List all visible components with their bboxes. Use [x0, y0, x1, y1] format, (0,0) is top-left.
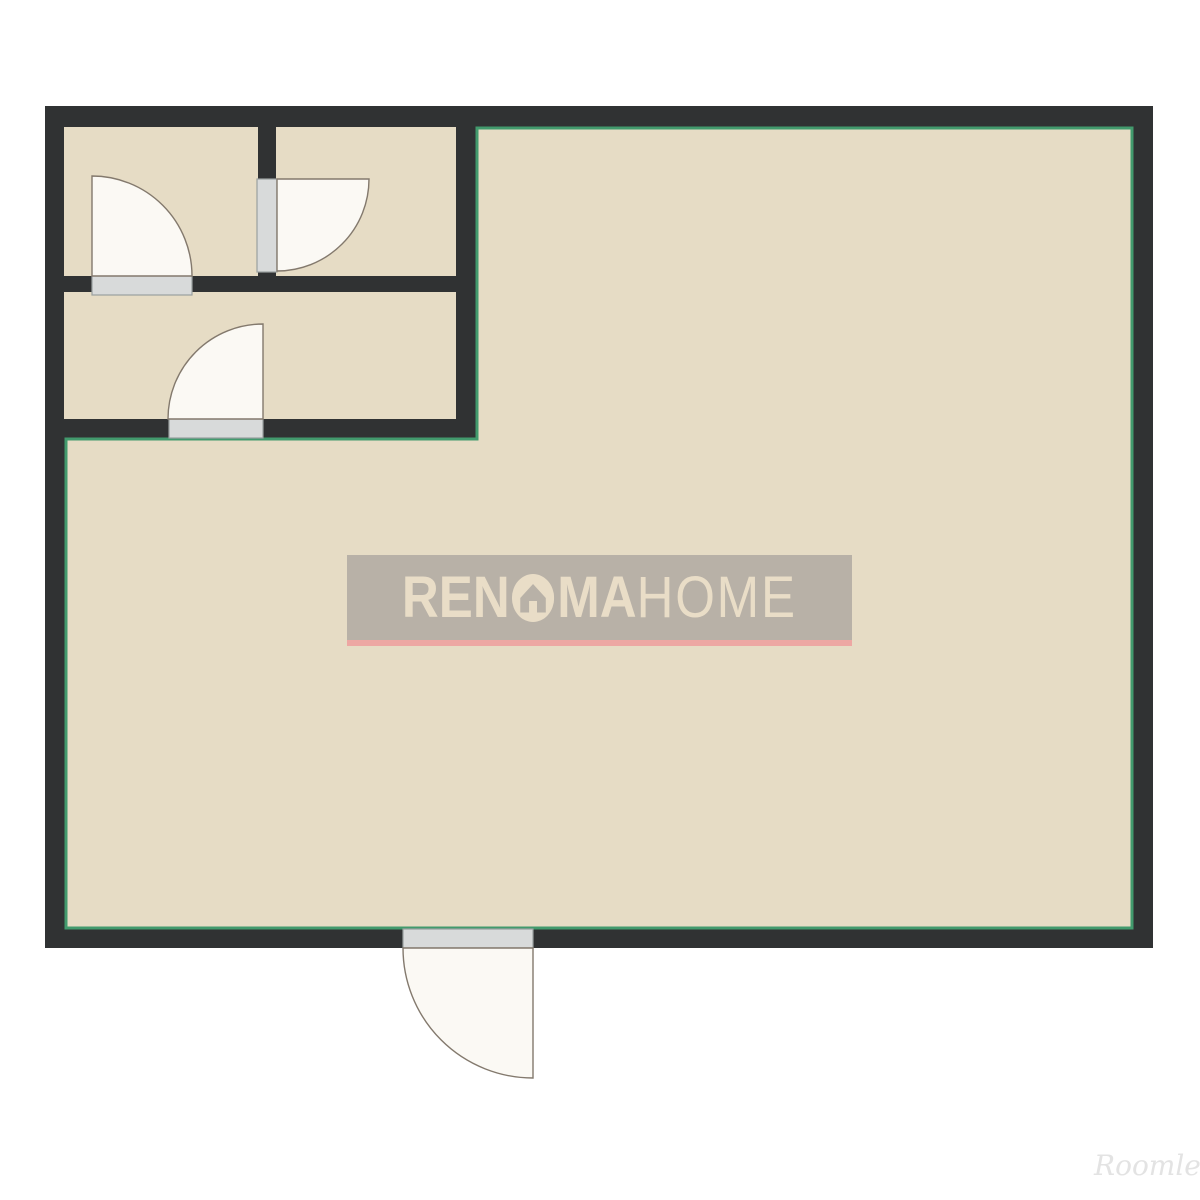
door-sill-entrance	[403, 929, 533, 948]
watermark-underline	[347, 640, 852, 646]
watermark-text-bold-1: REN	[402, 569, 510, 627]
door-sill-top-middle-room	[257, 179, 277, 272]
watermark-band: REN MA HOME	[347, 555, 852, 640]
door-sill-lower-room	[169, 418, 263, 438]
watermark-text-bold-2: MA	[557, 569, 636, 627]
credit-label: Roomle	[1094, 1149, 1200, 1182]
door-sill-top-left-room	[92, 275, 192, 295]
house-circle-icon	[512, 574, 554, 622]
floor-plan-canvas: REN MA HOME Roomle	[0, 0, 1200, 1200]
watermark-text-light: HOME	[637, 569, 797, 627]
watermark-wordmark: REN MA HOME	[402, 569, 797, 627]
door-swing-entrance	[403, 948, 533, 1078]
